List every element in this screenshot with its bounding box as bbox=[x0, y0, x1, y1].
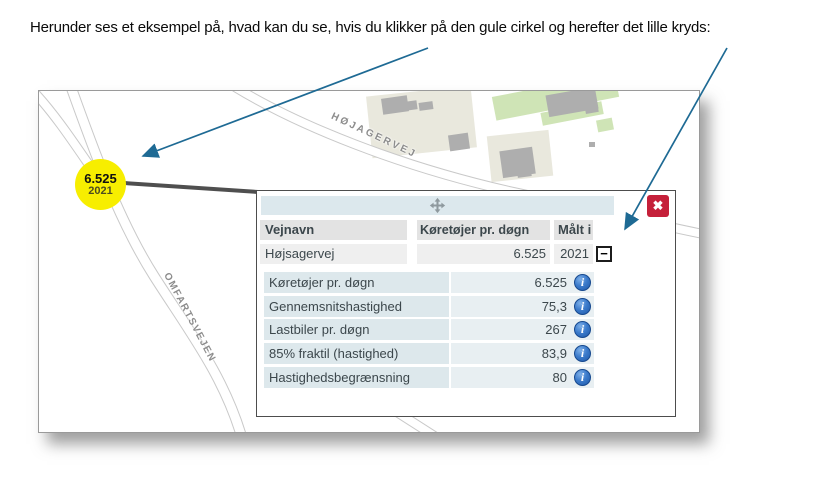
minus-icon: − bbox=[600, 249, 608, 259]
detail-value: 75,3 i bbox=[451, 296, 594, 317]
info-icon[interactable]: i bbox=[574, 298, 591, 315]
marker-year: 2021 bbox=[88, 185, 112, 197]
info-icon[interactable]: i bbox=[574, 369, 591, 386]
screenshot-canvas: Herunder ses et eksempel på, hvad kan du… bbox=[0, 0, 819, 483]
measured-year-value: 2021 bbox=[554, 244, 593, 264]
detail-row: Hastighedsbegrænsning 80 i bbox=[264, 367, 594, 388]
popup-drag-handle[interactable] bbox=[261, 196, 614, 215]
detail-value: 267 i bbox=[451, 319, 594, 340]
column-header-malt-i: Målt i bbox=[554, 220, 593, 240]
info-icon[interactable]: i bbox=[574, 345, 591, 362]
traffic-count-marker[interactable]: 6.525 2021 bbox=[75, 159, 126, 210]
detail-label: 85% fraktil (hastighed) bbox=[264, 343, 449, 364]
map-green-area bbox=[596, 118, 614, 133]
detail-value: 83,9 i bbox=[451, 343, 594, 364]
detail-label: Hastighedsbegrænsning bbox=[264, 367, 449, 388]
detail-label: Gennemsnitshastighed bbox=[264, 296, 449, 317]
vehicles-per-day-value: 6.525 bbox=[417, 244, 550, 264]
close-icon: ✖ bbox=[653, 198, 664, 214]
marker-leader-line bbox=[124, 183, 258, 192]
map-viewport[interactable]: HØJAGERVEJ OMFARTSVEJEN 6.525 2021 ✖ Vej… bbox=[38, 90, 700, 433]
detail-label: Køretøjer pr. døgn bbox=[264, 272, 449, 293]
detail-row: Lastbiler pr. døgn 267 i bbox=[264, 319, 594, 340]
traffic-info-popup: ✖ Vejnavn Køretøjer pr. døgn Målt i Højs… bbox=[256, 190, 676, 417]
detail-row: 85% fraktil (hastighed) 83,9 i bbox=[264, 343, 594, 364]
detail-row: Køretøjer pr. døgn 6.525 i bbox=[264, 272, 594, 293]
road-name-value: Højsagervej bbox=[260, 244, 407, 264]
column-header-koretojer: Køretøjer pr. døgn bbox=[417, 220, 550, 240]
move-icon bbox=[429, 197, 446, 214]
popup-close-button[interactable]: ✖ bbox=[647, 195, 669, 217]
collapse-button[interactable]: − bbox=[596, 246, 612, 262]
info-icon[interactable]: i bbox=[574, 274, 591, 291]
column-header-vejnavn: Vejnavn bbox=[260, 220, 407, 240]
detail-value: 80 i bbox=[451, 367, 594, 388]
detail-label: Lastbiler pr. døgn bbox=[264, 319, 449, 340]
marker-count: 6.525 bbox=[84, 172, 117, 185]
detail-value: 6.525 i bbox=[451, 272, 594, 293]
intro-text: Herunder ses et eksempel på, hvad kan du… bbox=[30, 18, 810, 38]
info-icon[interactable]: i bbox=[574, 321, 591, 338]
detail-row: Gennemsnitshastighed 75,3 i bbox=[264, 296, 594, 317]
